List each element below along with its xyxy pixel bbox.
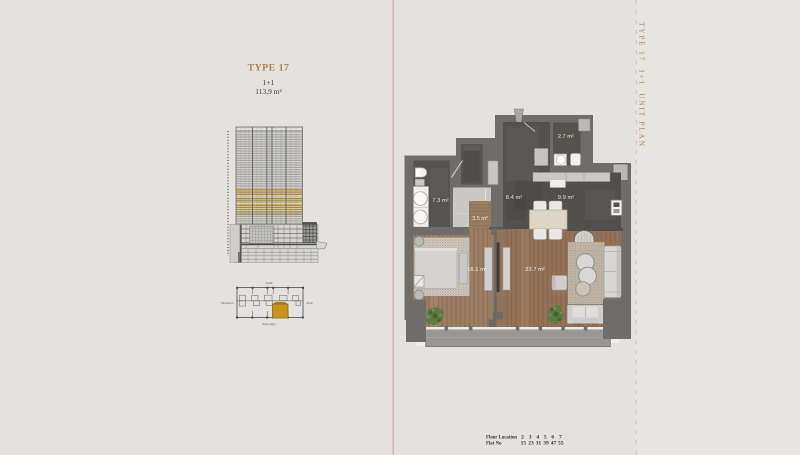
svg-text:TYPE 17: TYPE 17 (248, 63, 290, 74)
svg-text:15: 15 (521, 440, 527, 446)
svg-text:1+1: 1+1 (263, 78, 275, 87)
svg-text:9.9 m²: 9.9 m² (558, 195, 574, 201)
svg-text:16.1 m²: 16.1 m² (467, 267, 487, 273)
svg-text:55: 55 (558, 440, 564, 446)
svg-text:23: 23 (528, 440, 534, 446)
svg-text:47: 47 (551, 440, 557, 446)
svg-text:8.4 m²: 8.4 m² (506, 195, 522, 201)
svg-text:Başlangıç: Başlangıç (262, 322, 276, 326)
svg-text:31: 31 (536, 440, 542, 446)
svg-text:113,9 m²: 113,9 m² (255, 87, 282, 96)
svg-text:Sahil: Sahil (266, 281, 273, 285)
svg-text:2.7 m²: 2.7 m² (558, 134, 574, 140)
svg-text:Marmara: Marmara (221, 301, 234, 305)
svg-text:Flat No: Flat No (486, 440, 502, 446)
svg-text:23.7 m²: 23.7 m² (525, 267, 545, 273)
svg-text:3.5 m²: 3.5 m² (472, 216, 488, 222)
svg-text:TYPE 17 1+1 UNIT PLAN: TYPE 17 1+1 UNIT PLAN (638, 22, 647, 148)
svg-text:7.3 m²: 7.3 m² (432, 198, 448, 204)
svg-text:39: 39 (543, 440, 549, 446)
svg-text:Park: Park (307, 301, 314, 305)
